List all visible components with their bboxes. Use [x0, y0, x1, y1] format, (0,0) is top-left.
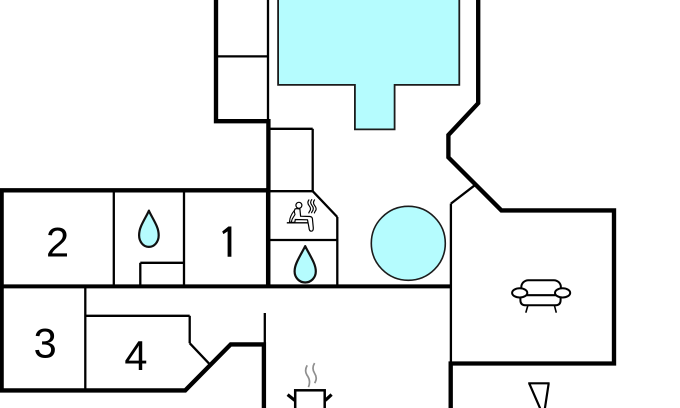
svg-text:3: 3	[34, 320, 57, 367]
svg-text:2: 2	[46, 219, 69, 266]
svg-text:4: 4	[124, 332, 147, 379]
